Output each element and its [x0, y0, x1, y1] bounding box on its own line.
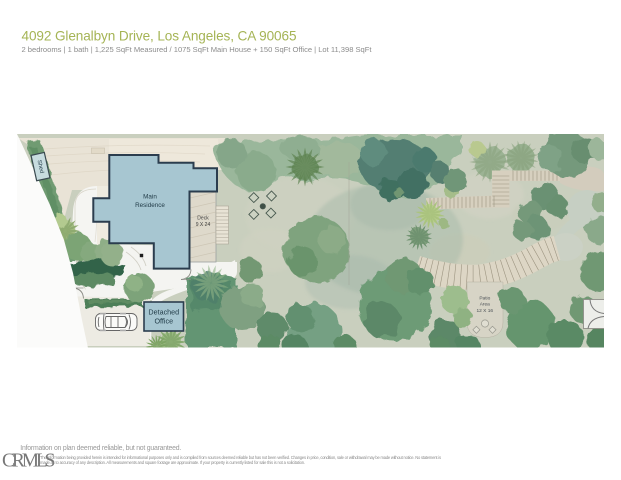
svg-text:2 bedrooms | 1 bath | 1,225 Sq: 2 bedrooms | 1 bath | 1,225 SqFt Measure…	[22, 45, 373, 54]
svg-text:9 X 24: 9 X 24	[196, 222, 211, 228]
svg-text:Area: Area	[480, 302, 490, 308]
svg-text:Deck: Deck	[197, 216, 209, 222]
svg-text:4092 Glenalbyn Drive, Los Ange: 4092 Glenalbyn Drive, Los Angeles, CA 90…	[22, 28, 297, 43]
svg-text:Office: Office	[154, 316, 173, 325]
svg-text:made as to accuracy of any des: made as to accuracy of any description. …	[40, 460, 305, 465]
svg-text:Main: Main	[143, 193, 157, 200]
svg-text:Residence: Residence	[135, 202, 165, 209]
svg-text:Patio: Patio	[479, 295, 490, 301]
svg-text:12 X 16: 12 X 16	[477, 308, 494, 314]
svg-text:Detached: Detached	[148, 308, 179, 317]
